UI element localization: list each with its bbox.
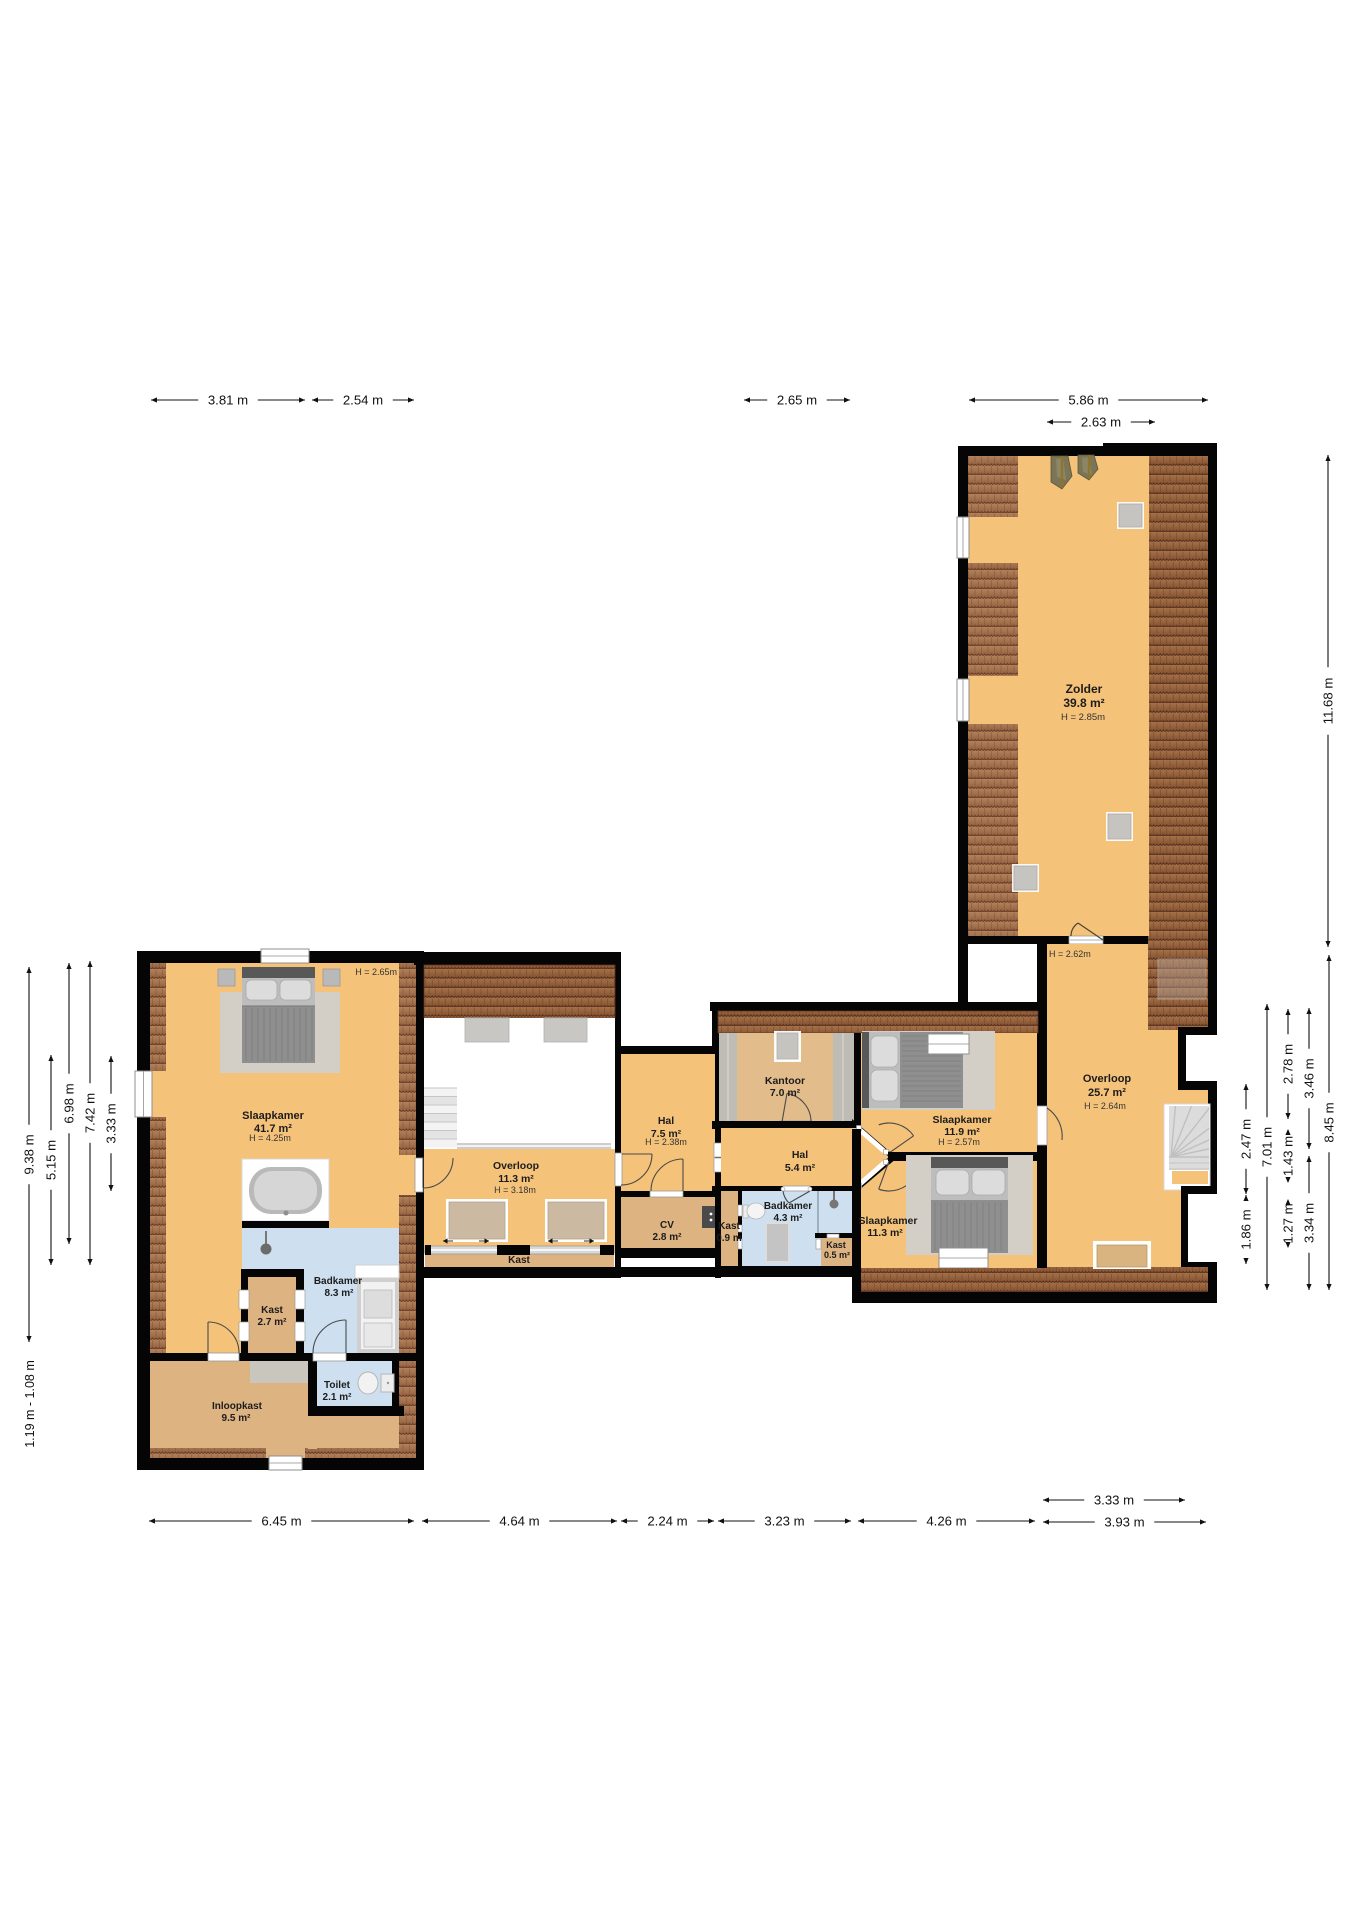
- svg-text:1.86 m: 1.86 m: [1238, 1209, 1253, 1249]
- svg-text:1.43 m: 1.43 m: [1280, 1136, 1295, 1176]
- svg-text:7.01 m: 7.01 m: [1259, 1127, 1274, 1167]
- svg-text:7.0 m²: 7.0 m²: [770, 1087, 801, 1099]
- svg-text:H = 2.85m: H = 2.85m: [1061, 712, 1105, 723]
- svg-text:Badkamer: Badkamer: [764, 1201, 812, 1212]
- svg-text:0.5 m²: 0.5 m²: [824, 1250, 850, 1260]
- svg-text:Overloop: Overloop: [1083, 1073, 1132, 1085]
- svg-text:2.54 m: 2.54 m: [343, 393, 383, 408]
- svg-text:3.81 m: 3.81 m: [208, 393, 248, 408]
- svg-text:4.26 m: 4.26 m: [926, 1514, 966, 1529]
- svg-text:2.78 m: 2.78 m: [1280, 1044, 1295, 1084]
- svg-text:11.3 m²: 11.3 m²: [867, 1227, 903, 1239]
- svg-text:3.46 m: 3.46 m: [1301, 1058, 1316, 1098]
- svg-text:3.34 m: 3.34 m: [1301, 1203, 1316, 1243]
- svg-text:3.33 m: 3.33 m: [1094, 1493, 1134, 1508]
- svg-text:6.45 m: 6.45 m: [261, 1514, 301, 1529]
- svg-text:7.42 m: 7.42 m: [82, 1093, 97, 1133]
- svg-text:2.1 m²: 2.1 m²: [323, 1392, 353, 1403]
- svg-text:Kast: Kast: [261, 1305, 283, 1316]
- svg-text:2.63 m: 2.63 m: [1081, 415, 1121, 430]
- svg-text:5.86 m: 5.86 m: [1068, 393, 1108, 408]
- svg-text:1.27 m: 1.27 m: [1280, 1203, 1295, 1243]
- svg-text:39.8 m²: 39.8 m²: [1063, 696, 1104, 710]
- svg-text:9.38 m: 9.38 m: [21, 1134, 36, 1174]
- svg-text:H = 2.57m: H = 2.57m: [938, 1137, 980, 1147]
- svg-text:4.3 m²: 4.3 m²: [774, 1213, 804, 1224]
- svg-text:Slaapkamer: Slaapkamer: [859, 1215, 918, 1227]
- svg-text:25.7 m²: 25.7 m²: [1088, 1087, 1126, 1099]
- svg-text:H = 3.18m: H = 3.18m: [494, 1185, 536, 1195]
- svg-text:Slaapkamer: Slaapkamer: [242, 1110, 304, 1122]
- svg-text:3.33 m: 3.33 m: [103, 1103, 118, 1143]
- svg-text:Kantoor: Kantoor: [765, 1075, 805, 1087]
- svg-text:Inloopkast: Inloopkast: [212, 1401, 263, 1412]
- svg-text:Hal: Hal: [658, 1115, 674, 1127]
- svg-text:Hal: Hal: [792, 1149, 808, 1161]
- svg-text:Zolder: Zolder: [1066, 682, 1103, 696]
- svg-text:11.3 m²: 11.3 m²: [498, 1173, 534, 1185]
- svg-text:4.64 m: 4.64 m: [499, 1514, 539, 1529]
- svg-text:1.19 m - 1.08 m: 1.19 m - 1.08 m: [23, 1360, 37, 1448]
- svg-text:5.4 m²: 5.4 m²: [785, 1162, 816, 1174]
- svg-text:H = 4.25m: H = 4.25m: [249, 1133, 291, 1143]
- svg-text:8.3 m²: 8.3 m²: [325, 1288, 355, 1299]
- svg-text:8.45 m: 8.45 m: [1321, 1102, 1336, 1142]
- svg-text:Kast: Kast: [826, 1240, 846, 1250]
- svg-text:H = 2.64m: H = 2.64m: [1084, 1101, 1126, 1111]
- svg-text:Overloop: Overloop: [493, 1160, 539, 1172]
- svg-text:H = 2.65m: H = 2.65m: [355, 967, 397, 977]
- svg-text:Badkamer: Badkamer: [314, 1276, 362, 1287]
- svg-text:2.7 m²: 2.7 m²: [258, 1317, 288, 1328]
- svg-text:Kast: Kast: [718, 1221, 740, 1232]
- svg-text:Toilet: Toilet: [324, 1380, 351, 1391]
- svg-text:H = 2.62m: H = 2.62m: [1049, 949, 1091, 959]
- svg-text:11.68 m: 11.68 m: [1320, 678, 1335, 725]
- svg-text:2.24 m: 2.24 m: [647, 1514, 687, 1529]
- svg-text:6.98 m: 6.98 m: [61, 1083, 76, 1123]
- svg-text:H = 2.38m: H = 2.38m: [645, 1137, 687, 1147]
- svg-text:CV: CV: [660, 1220, 674, 1231]
- svg-text:9.5 m²: 9.5 m²: [222, 1413, 252, 1424]
- svg-text:2.47 m: 2.47 m: [1238, 1119, 1253, 1159]
- svg-text:0.9 m: 0.9 m: [716, 1233, 742, 1244]
- svg-text:5.15 m: 5.15 m: [43, 1140, 58, 1180]
- svg-text:2.8 m²: 2.8 m²: [653, 1232, 683, 1243]
- svg-text:3.23 m: 3.23 m: [764, 1514, 804, 1529]
- svg-text:2.65 m: 2.65 m: [777, 393, 817, 408]
- svg-text:Kast: Kast: [508, 1255, 530, 1266]
- svg-text:Slaapkamer: Slaapkamer: [933, 1114, 992, 1126]
- svg-text:3.93 m: 3.93 m: [1104, 1515, 1144, 1530]
